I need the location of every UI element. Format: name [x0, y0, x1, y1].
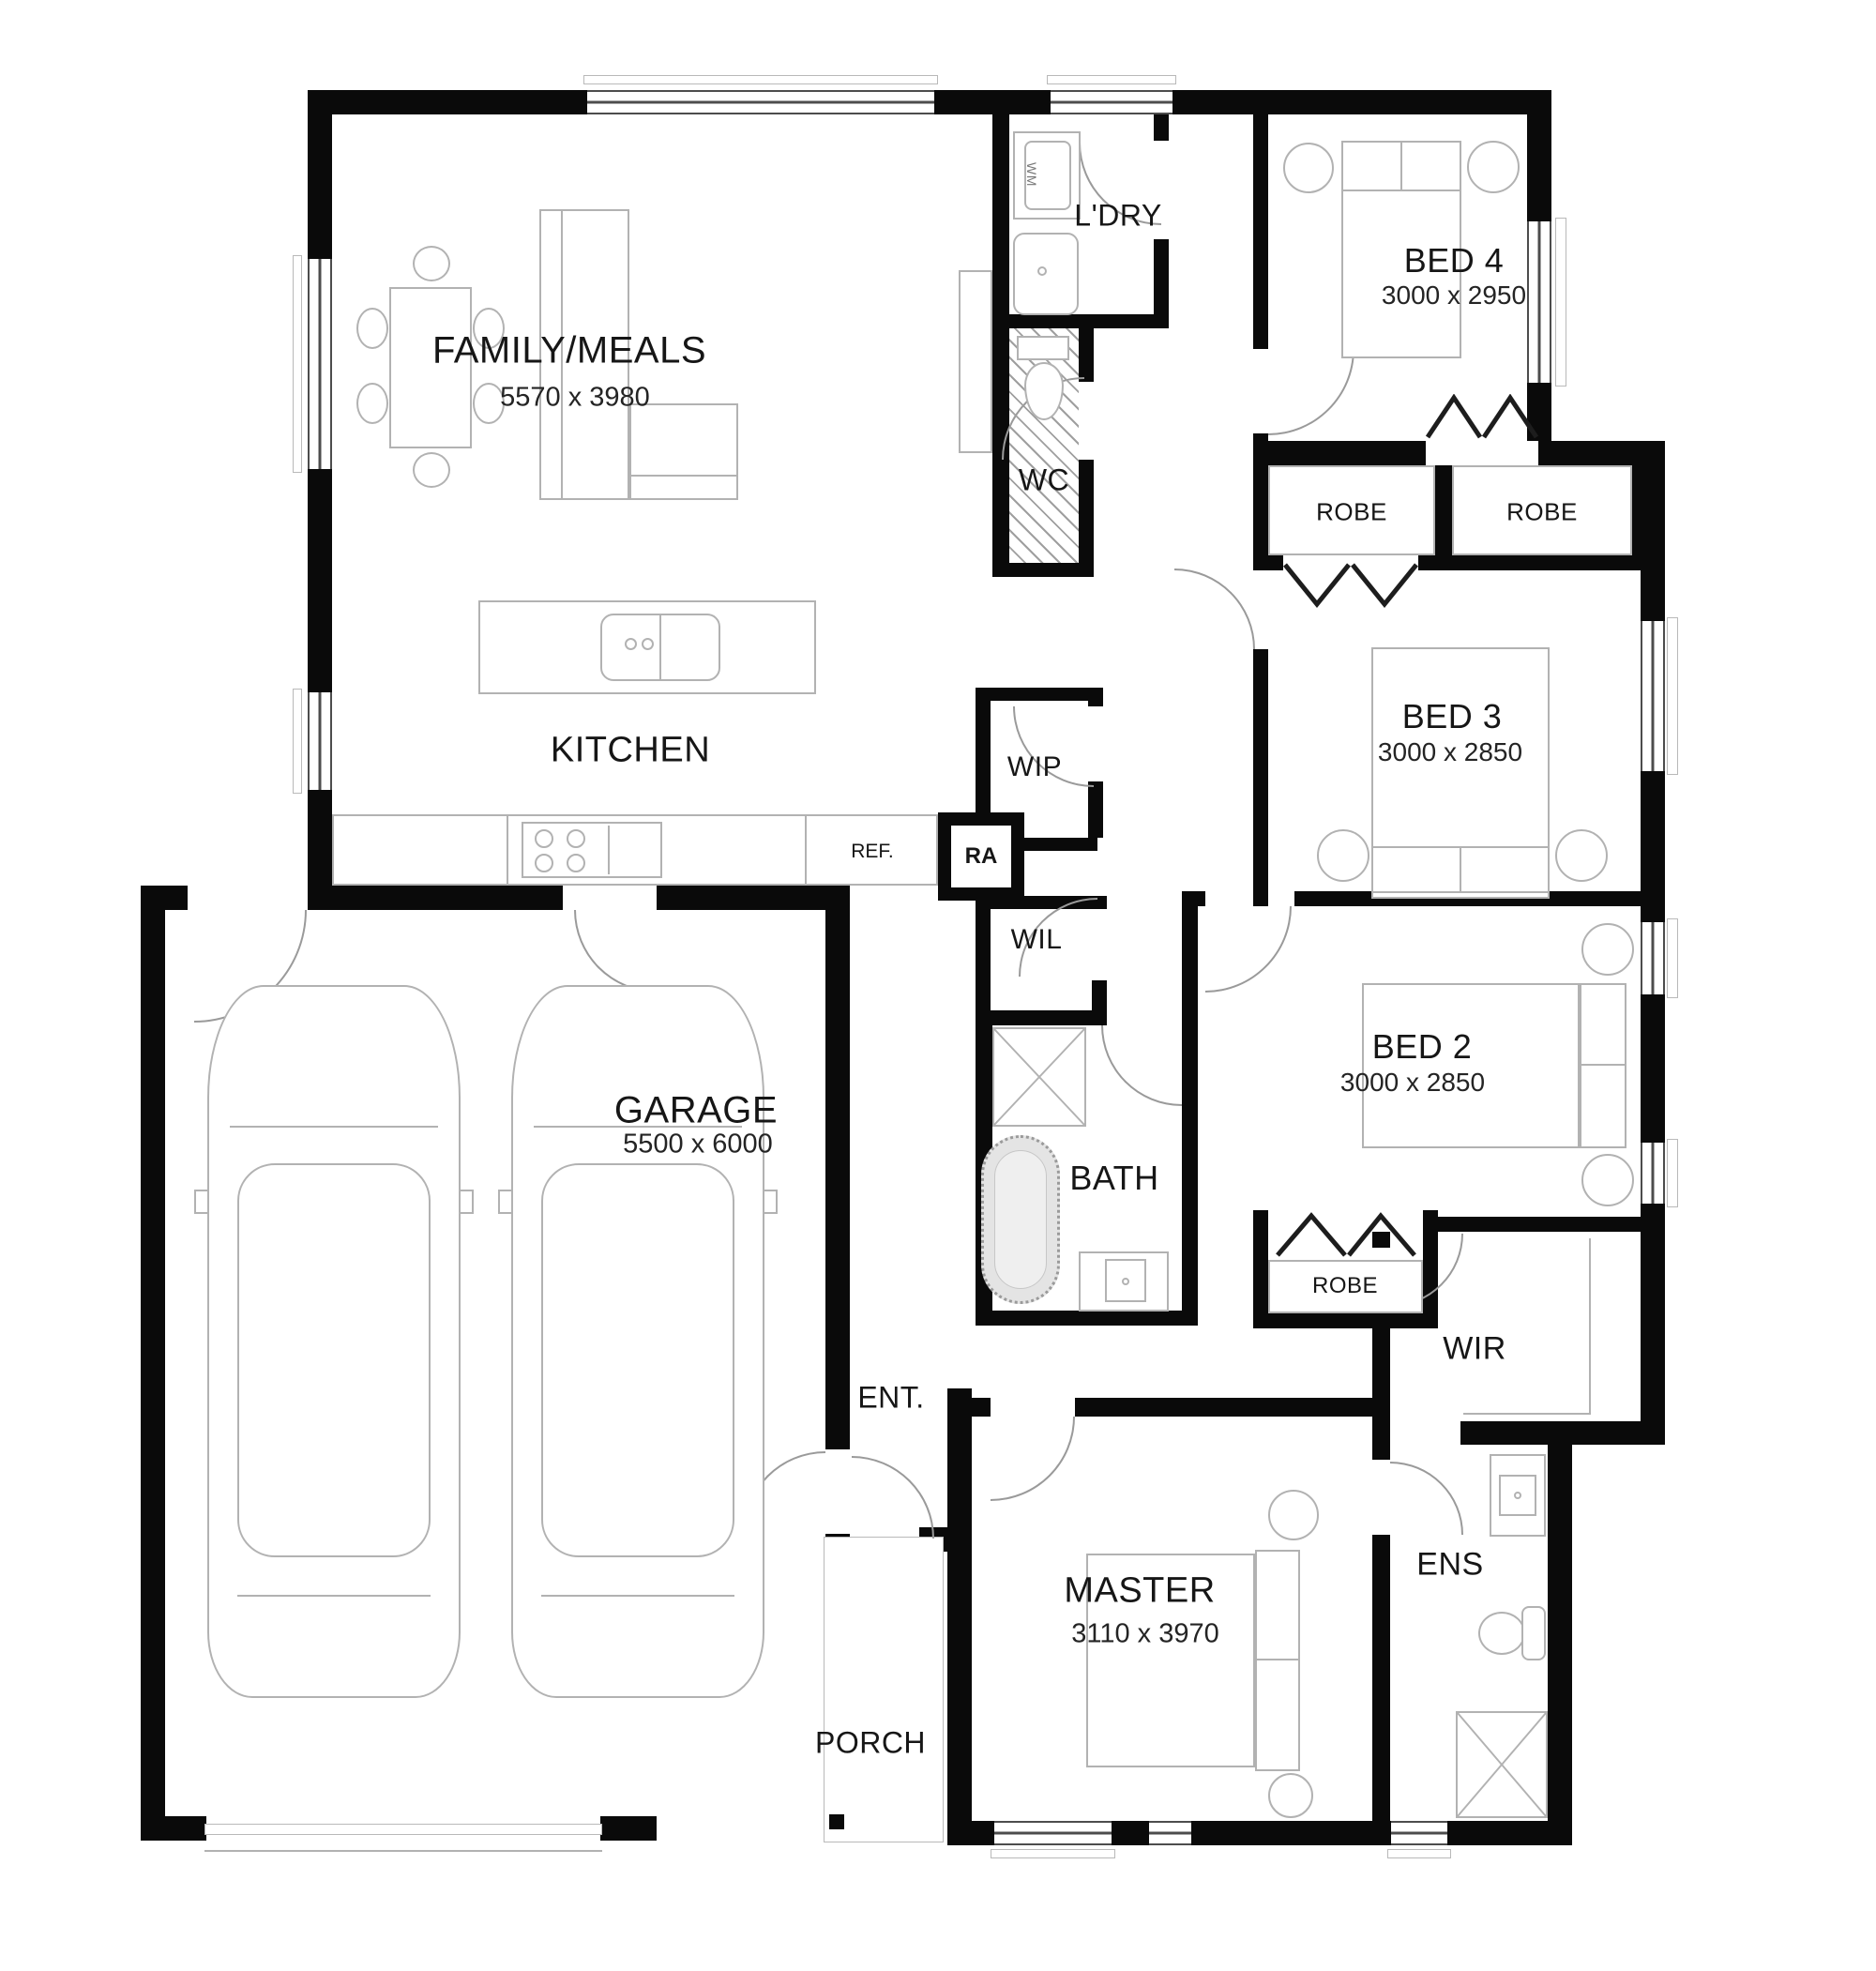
wall-segment	[947, 1388, 972, 1845]
door-swing-arc	[852, 1456, 934, 1539]
bedside-table	[1581, 923, 1634, 976]
wall-segment	[1088, 688, 1103, 706]
bathtub	[981, 1135, 1060, 1304]
floor-plan: FAMILY/MEALS 5570 x 3980 KITCHEN L'DRY W…	[0, 0, 1876, 1971]
cooktop-burner	[535, 829, 553, 848]
bifold-door	[1276, 1212, 1416, 1257]
door-swing-arc	[1174, 569, 1255, 649]
robe-label: ROBE	[1312, 1273, 1378, 1299]
room-dims-garage: 5500 x 6000	[623, 1130, 773, 1160]
wall-segment	[1253, 649, 1268, 906]
cooktop-divider	[608, 826, 610, 874]
window	[587, 90, 934, 114]
bedside-table	[1581, 1154, 1634, 1206]
wall-segment	[1075, 1398, 1372, 1417]
garage-door	[204, 1824, 602, 1835]
bedside-table	[1555, 829, 1608, 882]
window-sill	[1667, 918, 1678, 998]
car-rear-line	[541, 1595, 734, 1597]
wall-segment	[141, 910, 165, 1841]
wall-segment	[310, 886, 563, 910]
window	[1641, 621, 1665, 771]
car-cabin	[541, 1163, 734, 1557]
wall-segment	[1438, 1217, 1665, 1232]
wall-segment	[1154, 114, 1169, 141]
wall-segment	[1253, 441, 1426, 465]
bedside-table	[1317, 829, 1369, 882]
chair	[413, 246, 450, 281]
room-label-garage: GARAGE	[614, 1090, 778, 1132]
sink-tap	[642, 638, 654, 650]
wall-segment	[1191, 1821, 1391, 1845]
shower	[992, 1027, 1086, 1127]
tv-cabinet	[959, 270, 992, 453]
room-label-bath: BATH	[1069, 1159, 1158, 1198]
garage-door	[204, 1850, 602, 1852]
car-mirror	[498, 1190, 513, 1214]
window	[308, 692, 332, 790]
bed-pillows	[1580, 983, 1626, 1148]
sink-tap	[625, 638, 637, 650]
wall-segment	[1182, 906, 1198, 1326]
car-windshield	[230, 1126, 438, 1128]
wall-segment	[992, 563, 1094, 577]
pillow-divider	[1400, 143, 1402, 190]
wall-segment	[1372, 1535, 1390, 1845]
cooktop-burner	[535, 854, 553, 872]
wall-segment	[1641, 1204, 1665, 1421]
wall-segment	[308, 469, 332, 692]
bedside-table	[1283, 143, 1334, 193]
room-label-ens: ENS	[1416, 1547, 1483, 1584]
wall-segment	[934, 90, 1051, 114]
wall-segment	[1641, 994, 1665, 1143]
pillow-divider	[1257, 1659, 1298, 1660]
robe-label: ROBE	[1316, 498, 1387, 527]
window	[308, 259, 332, 469]
room-label-wc: WC	[1019, 463, 1069, 498]
room-dims-bed4: 3000 x 2950	[1382, 280, 1526, 311]
door-swing-arc	[1390, 1462, 1463, 1535]
wall-segment	[1088, 781, 1103, 838]
wall-segment	[972, 1398, 991, 1417]
wall-segment	[1447, 1821, 1572, 1845]
room-label-bed2: BED 2	[1372, 1027, 1473, 1067]
basin-drain	[1122, 1278, 1129, 1285]
wall-segment	[308, 90, 587, 114]
room-label-bed4: BED 4	[1404, 241, 1505, 280]
wall-segment	[1418, 555, 1641, 570]
toilet-cistern	[1521, 1606, 1546, 1660]
wall-segment	[1460, 1421, 1665, 1445]
bed-pillows	[1255, 1550, 1300, 1771]
basin-drain	[1514, 1492, 1521, 1499]
window-sill	[1387, 1849, 1451, 1858]
room-label-wip: WIP	[1007, 751, 1062, 783]
wir-shelf	[1589, 1238, 1591, 1415]
window-sill	[293, 255, 302, 473]
room-label-wil: WIL	[1011, 924, 1063, 956]
bedside-table	[1268, 1490, 1319, 1540]
window-sill	[293, 689, 302, 794]
window	[1527, 221, 1551, 383]
wall-segment	[976, 909, 991, 1010]
wall-segment	[141, 1816, 206, 1841]
room-label-porch: PORCH	[815, 1726, 926, 1761]
wall-segment	[141, 886, 188, 910]
car-mirror	[459, 1190, 474, 1214]
wall-segment	[1079, 460, 1094, 576]
window	[1149, 1821, 1191, 1845]
wall-segment	[976, 688, 1097, 701]
room-label-bed3: BED 3	[1402, 697, 1503, 736]
wir-shelf	[1463, 1413, 1589, 1415]
room-dims-master: 3110 x 3970	[1071, 1619, 1219, 1650]
car-mirror	[194, 1190, 209, 1214]
toilet	[1478, 1612, 1525, 1655]
fridge-label: REF.	[851, 841, 894, 863]
wall-segment	[1253, 114, 1268, 349]
window-sill	[1667, 1139, 1678, 1207]
wall-segment	[1253, 1313, 1438, 1328]
wall-segment	[1092, 980, 1107, 1010]
sofa-chaise	[629, 403, 738, 500]
door-swing-arc	[1205, 906, 1292, 993]
wall-segment	[1112, 1821, 1149, 1845]
room-label-family: FAMILY/MEALS	[432, 330, 706, 372]
toilet	[1017, 336, 1069, 360]
window-sill	[991, 1849, 1115, 1858]
wall-segment	[1548, 1445, 1572, 1845]
window-sill	[1555, 218, 1566, 387]
window	[1391, 1821, 1447, 1845]
wall-segment	[1253, 1210, 1268, 1328]
wall-segment	[992, 114, 1009, 576]
door-swing-arc	[574, 910, 657, 993]
window	[1641, 1143, 1665, 1204]
trough-drain	[1037, 266, 1047, 276]
room-label-master: MASTER	[1064, 1571, 1215, 1612]
room-dims-bed2: 3000 x 2850	[1340, 1068, 1485, 1098]
window-sill	[1667, 617, 1678, 775]
car-rear-line	[237, 1595, 431, 1597]
wall-segment	[1527, 114, 1551, 221]
door-swing-arc	[1101, 1025, 1182, 1106]
door-swing-arc	[991, 1417, 1075, 1501]
pillow-divider	[1581, 1064, 1625, 1066]
room-label-wir: WIR	[1443, 1331, 1506, 1368]
window-sill	[583, 75, 938, 84]
window	[1051, 90, 1172, 114]
sink-divider	[659, 615, 661, 679]
wall-segment	[1435, 465, 1452, 555]
wall-segment	[1372, 1323, 1390, 1460]
wall-segment	[1632, 465, 1647, 555]
chair	[356, 383, 388, 424]
bench-divider	[805, 816, 807, 884]
chair	[413, 452, 450, 488]
wall-segment	[308, 114, 332, 259]
cooktop-burner	[567, 854, 585, 872]
bench-divider	[507, 816, 508, 884]
pillow-divider	[1460, 848, 1461, 891]
wall-segment	[657, 886, 850, 910]
wall-segment	[1641, 771, 1665, 922]
wall-segment	[1009, 314, 1169, 328]
car-mirror	[763, 1190, 778, 1214]
window	[1641, 922, 1665, 994]
bedside-table	[1467, 141, 1520, 193]
wall-segment	[976, 1311, 1198, 1326]
room-label-kitchen: KITCHEN	[551, 731, 710, 771]
wall-segment	[1253, 555, 1283, 570]
wall-segment	[825, 910, 850, 1449]
wall-segment	[1182, 891, 1205, 906]
bedside-table	[1268, 1773, 1313, 1818]
return-air-label: RA	[965, 843, 998, 870]
shower	[1456, 1711, 1548, 1818]
room-dims-family: 5570 x 3980	[500, 383, 650, 414]
door-swing-arc	[1268, 349, 1354, 435]
bifold-door	[1426, 394, 1538, 439]
chair	[356, 308, 388, 349]
window-sill	[1047, 75, 1176, 84]
room-label-laundry: L'DRY	[1074, 199, 1161, 234]
wall-segment	[1172, 90, 1551, 114]
room-label-ent: ENT.	[857, 1381, 924, 1416]
wall-segment	[600, 1816, 657, 1841]
washing-machine-label: WM	[1024, 162, 1039, 187]
wall-segment	[976, 1010, 1107, 1025]
window	[994, 1821, 1112, 1845]
porch-post	[829, 1814, 844, 1829]
cooktop-burner	[567, 829, 585, 848]
robe-label: ROBE	[1506, 498, 1578, 527]
wall-segment	[1079, 328, 1094, 382]
bifold-door	[1283, 563, 1418, 608]
porch-outline	[824, 1537, 944, 1842]
sofa-cushion-line	[631, 475, 736, 477]
room-dims-bed3: 3000 x 2850	[1378, 737, 1522, 767]
car-cabin	[237, 1163, 431, 1557]
